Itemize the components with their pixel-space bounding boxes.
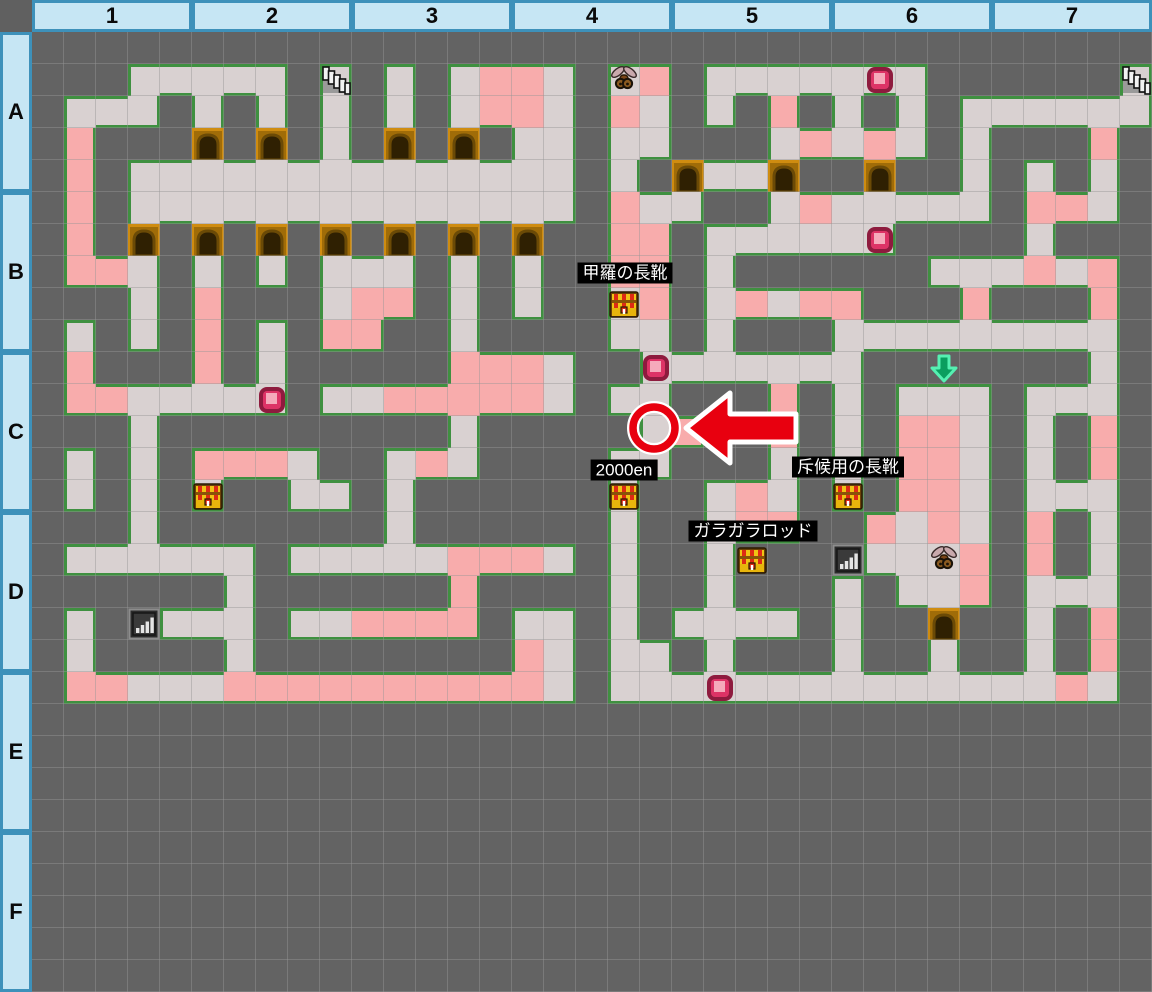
floor-tile[interactable] [608, 160, 640, 192]
floor-tile[interactable] [704, 224, 736, 256]
floor-tile[interactable] [128, 480, 160, 512]
floor-tile[interactable] [256, 352, 288, 384]
floor-tile[interactable] [928, 256, 960, 288]
floor-tile[interactable] [736, 672, 768, 704]
floor-tile[interactable] [320, 128, 352, 160]
floor-tile[interactable] [768, 288, 800, 320]
floor-tile[interactable] [832, 672, 864, 704]
floor-tile[interactable] [992, 96, 1024, 128]
damage-floor-tile[interactable] [192, 288, 224, 320]
floor-tile[interactable] [448, 96, 480, 128]
damage-floor-tile[interactable] [480, 96, 512, 128]
stairs-icon[interactable] [1120, 64, 1152, 96]
floor-tile[interactable] [1024, 384, 1056, 416]
floor-tile[interactable] [384, 512, 416, 544]
floor-tile[interactable] [224, 160, 256, 192]
floor-tile[interactable] [192, 672, 224, 704]
damage-floor-tile[interactable] [384, 672, 416, 704]
damage-floor-tile[interactable] [64, 352, 96, 384]
floor-tile[interactable] [832, 576, 864, 608]
foe-gem-icon[interactable] [704, 672, 736, 704]
floor-tile[interactable] [128, 384, 160, 416]
damage-floor-tile[interactable] [832, 288, 864, 320]
damage-floor-tile[interactable] [512, 64, 544, 96]
floor-tile[interactable] [256, 192, 288, 224]
damage-floor-tile[interactable] [192, 448, 224, 480]
floor-tile[interactable] [160, 192, 192, 224]
floor-tile[interactable] [544, 640, 576, 672]
floor-tile[interactable] [1088, 672, 1120, 704]
floor-tile[interactable] [640, 96, 672, 128]
map-canvas[interactable]: 甲羅の長靴2000en斥候用の長靴ガラガラロッド [0, 0, 1152, 992]
damage-floor-tile[interactable] [256, 448, 288, 480]
floor-tile[interactable] [320, 480, 352, 512]
floor-tile[interactable] [544, 544, 576, 576]
floor-tile[interactable] [992, 320, 1024, 352]
floor-tile[interactable] [192, 192, 224, 224]
floor-tile[interactable] [224, 544, 256, 576]
floor-tile[interactable] [224, 576, 256, 608]
floor-tile[interactable] [256, 320, 288, 352]
damage-floor-tile[interactable] [192, 352, 224, 384]
floor-tile[interactable] [896, 64, 928, 96]
floor-tile[interactable] [768, 352, 800, 384]
floor-tile[interactable] [768, 64, 800, 96]
damage-floor-tile[interactable] [928, 512, 960, 544]
door-tile[interactable] [384, 128, 416, 160]
floor-tile[interactable] [704, 320, 736, 352]
floor-tile[interactable] [224, 64, 256, 96]
damage-floor-tile[interactable] [64, 224, 96, 256]
floor-tile[interactable] [832, 64, 864, 96]
floor-tile[interactable] [896, 320, 928, 352]
floor-tile[interactable] [736, 224, 768, 256]
door-tile[interactable] [256, 224, 288, 256]
floor-tile[interactable] [1056, 256, 1088, 288]
damage-floor-tile[interactable] [512, 96, 544, 128]
door-tile[interactable] [256, 128, 288, 160]
floor-tile[interactable] [224, 640, 256, 672]
damage-floor-tile[interactable] [224, 448, 256, 480]
floor-tile[interactable] [544, 672, 576, 704]
floor-tile[interactable] [608, 544, 640, 576]
floor-tile[interactable] [128, 544, 160, 576]
damage-floor-tile[interactable] [416, 608, 448, 640]
foe-gem-icon[interactable] [256, 384, 288, 416]
door-tile[interactable] [128, 224, 160, 256]
floor-tile[interactable] [1024, 224, 1056, 256]
floor-tile[interactable] [960, 96, 992, 128]
descend-arrow-icon[interactable] [928, 352, 960, 384]
floor-tile[interactable] [256, 160, 288, 192]
floor-tile[interactable] [768, 480, 800, 512]
floor-tile[interactable] [128, 320, 160, 352]
floor-tile[interactable] [832, 416, 864, 448]
damage-floor-tile[interactable] [352, 672, 384, 704]
floor-tile[interactable] [192, 608, 224, 640]
floor-tile[interactable] [544, 384, 576, 416]
floor-tile[interactable] [672, 672, 704, 704]
floor-tile[interactable] [384, 256, 416, 288]
damage-floor-tile[interactable] [448, 672, 480, 704]
damage-floor-tile[interactable] [928, 480, 960, 512]
damage-floor-tile[interactable] [640, 224, 672, 256]
damage-floor-tile[interactable] [800, 288, 832, 320]
door-tile[interactable] [672, 160, 704, 192]
floor-tile[interactable] [1024, 320, 1056, 352]
floor-tile[interactable] [704, 96, 736, 128]
floor-tile[interactable] [352, 544, 384, 576]
floor-tile[interactable] [160, 384, 192, 416]
floor-tile[interactable] [320, 608, 352, 640]
floor-tile[interactable] [64, 480, 96, 512]
floor-tile[interactable] [480, 192, 512, 224]
floor-tile[interactable] [288, 192, 320, 224]
damage-floor-tile[interactable] [1024, 192, 1056, 224]
floor-tile[interactable] [896, 544, 928, 576]
floor-tile[interactable] [960, 320, 992, 352]
floor-tile[interactable] [832, 96, 864, 128]
floor-tile[interactable] [832, 640, 864, 672]
damage-floor-tile[interactable] [448, 608, 480, 640]
damage-floor-tile[interactable] [928, 416, 960, 448]
floor-tile[interactable] [640, 192, 672, 224]
floor-tile[interactable] [288, 448, 320, 480]
floor-tile[interactable] [960, 256, 992, 288]
floor-tile[interactable] [448, 288, 480, 320]
floor-tile[interactable] [384, 64, 416, 96]
floor-tile[interactable] [704, 576, 736, 608]
floor-tile[interactable] [832, 224, 864, 256]
damage-floor-tile[interactable] [640, 288, 672, 320]
damage-floor-tile[interactable] [1024, 512, 1056, 544]
damage-floor-tile[interactable] [320, 672, 352, 704]
damage-floor-tile[interactable] [768, 96, 800, 128]
damage-floor-tile[interactable] [1088, 288, 1120, 320]
floor-tile[interactable] [832, 128, 864, 160]
floor-tile[interactable] [352, 160, 384, 192]
damage-floor-tile[interactable] [480, 384, 512, 416]
foe-monster-icon[interactable] [608, 64, 640, 96]
damage-floor-tile[interactable] [864, 128, 896, 160]
floor-tile[interactable] [320, 96, 352, 128]
floor-tile[interactable] [128, 256, 160, 288]
floor-tile[interactable] [1056, 384, 1088, 416]
floor-tile[interactable] [288, 160, 320, 192]
floor-tile[interactable] [960, 480, 992, 512]
damage-floor-tile[interactable] [640, 64, 672, 96]
floor-tile[interactable] [608, 320, 640, 352]
floor-tile[interactable] [896, 192, 928, 224]
treasure-chest-icon[interactable] [608, 288, 640, 320]
floor-tile[interactable] [320, 288, 352, 320]
floor-tile[interactable] [128, 96, 160, 128]
floor-tile[interactable] [832, 608, 864, 640]
damage-floor-tile[interactable] [800, 192, 832, 224]
chart-panel-icon[interactable] [832, 544, 864, 576]
floor-tile[interactable] [1056, 320, 1088, 352]
floor-tile[interactable] [896, 384, 928, 416]
floor-tile[interactable] [1024, 160, 1056, 192]
floor-tile[interactable] [608, 640, 640, 672]
floor-tile[interactable] [1120, 96, 1152, 128]
floor-tile[interactable] [1024, 576, 1056, 608]
floor-tile[interactable] [224, 384, 256, 416]
floor-tile[interactable] [896, 576, 928, 608]
floor-tile[interactable] [704, 352, 736, 384]
floor-tile[interactable] [1024, 672, 1056, 704]
floor-tile[interactable] [1056, 480, 1088, 512]
damage-floor-tile[interactable] [960, 544, 992, 576]
floor-tile[interactable] [960, 672, 992, 704]
damage-floor-tile[interactable] [384, 288, 416, 320]
floor-tile[interactable] [960, 416, 992, 448]
floor-tile[interactable] [544, 192, 576, 224]
floor-tile[interactable] [864, 320, 896, 352]
floor-tile[interactable] [448, 64, 480, 96]
floor-tile[interactable] [768, 192, 800, 224]
floor-tile[interactable] [832, 352, 864, 384]
floor-tile[interactable] [800, 64, 832, 96]
floor-tile[interactable] [1088, 320, 1120, 352]
damage-floor-tile[interactable] [224, 672, 256, 704]
floor-tile[interactable] [1088, 160, 1120, 192]
floor-tile[interactable] [384, 160, 416, 192]
floor-tile[interactable] [96, 544, 128, 576]
floor-tile[interactable] [640, 640, 672, 672]
damage-floor-tile[interactable] [1088, 608, 1120, 640]
floor-tile[interactable] [448, 448, 480, 480]
floor-tile[interactable] [960, 448, 992, 480]
floor-tile[interactable] [192, 96, 224, 128]
damage-floor-tile[interactable] [512, 544, 544, 576]
floor-tile[interactable] [64, 448, 96, 480]
damage-floor-tile[interactable] [288, 672, 320, 704]
floor-tile[interactable] [544, 64, 576, 96]
floor-tile[interactable] [704, 608, 736, 640]
floor-tile[interactable] [1088, 512, 1120, 544]
floor-tile[interactable] [704, 160, 736, 192]
floor-tile[interactable] [192, 160, 224, 192]
damage-floor-tile[interactable] [448, 544, 480, 576]
damage-floor-tile[interactable] [64, 192, 96, 224]
floor-tile[interactable] [352, 192, 384, 224]
damage-floor-tile[interactable] [512, 640, 544, 672]
treasure-chest-icon[interactable] [608, 480, 640, 512]
damage-floor-tile[interactable] [608, 96, 640, 128]
floor-tile[interactable] [352, 384, 384, 416]
foe-gem-icon[interactable] [640, 352, 672, 384]
floor-tile[interactable] [704, 544, 736, 576]
floor-tile[interactable] [928, 192, 960, 224]
floor-tile[interactable] [64, 320, 96, 352]
damage-floor-tile[interactable] [1088, 416, 1120, 448]
damage-floor-tile[interactable] [864, 512, 896, 544]
damage-floor-tile[interactable] [64, 672, 96, 704]
door-tile[interactable] [448, 224, 480, 256]
floor-tile[interactable] [1024, 640, 1056, 672]
floor-tile[interactable] [160, 160, 192, 192]
floor-tile[interactable] [800, 352, 832, 384]
damage-floor-tile[interactable] [960, 288, 992, 320]
floor-tile[interactable] [160, 608, 192, 640]
door-tile[interactable] [192, 224, 224, 256]
damage-floor-tile[interactable] [352, 608, 384, 640]
floor-tile[interactable] [128, 64, 160, 96]
floor-tile[interactable] [800, 672, 832, 704]
floor-tile[interactable] [608, 128, 640, 160]
floor-tile[interactable] [608, 576, 640, 608]
floor-tile[interactable] [1088, 352, 1120, 384]
floor-tile[interactable] [1024, 448, 1056, 480]
floor-tile[interactable] [96, 96, 128, 128]
floor-tile[interactable] [704, 480, 736, 512]
damage-floor-tile[interactable] [736, 480, 768, 512]
damage-floor-tile[interactable] [352, 320, 384, 352]
floor-tile[interactable] [960, 192, 992, 224]
damage-floor-tile[interactable] [928, 448, 960, 480]
door-tile[interactable] [512, 224, 544, 256]
floor-tile[interactable] [864, 544, 896, 576]
floor-tile[interactable] [1088, 384, 1120, 416]
damage-floor-tile[interactable] [608, 192, 640, 224]
floor-tile[interactable] [896, 672, 928, 704]
foe-monster-icon[interactable] [928, 544, 960, 576]
floor-tile[interactable] [256, 96, 288, 128]
floor-tile[interactable] [320, 384, 352, 416]
floor-tile[interactable] [192, 544, 224, 576]
damage-floor-tile[interactable] [480, 64, 512, 96]
floor-tile[interactable] [64, 608, 96, 640]
floor-tile[interactable] [768, 128, 800, 160]
damage-floor-tile[interactable] [96, 256, 128, 288]
floor-tile[interactable] [352, 256, 384, 288]
damage-floor-tile[interactable] [896, 416, 928, 448]
damage-floor-tile[interactable] [896, 480, 928, 512]
floor-tile[interactable] [736, 608, 768, 640]
floor-tile[interactable] [896, 512, 928, 544]
floor-tile[interactable] [1056, 96, 1088, 128]
floor-tile[interactable] [928, 640, 960, 672]
floor-tile[interactable] [1088, 192, 1120, 224]
chart-panel-icon[interactable] [128, 608, 160, 640]
floor-tile[interactable] [736, 64, 768, 96]
door-tile[interactable] [928, 608, 960, 640]
door-tile[interactable] [768, 160, 800, 192]
floor-tile[interactable] [1024, 96, 1056, 128]
damage-floor-tile[interactable] [192, 320, 224, 352]
floor-tile[interactable] [128, 416, 160, 448]
damage-floor-tile[interactable] [736, 288, 768, 320]
floor-tile[interactable] [256, 256, 288, 288]
floor-tile[interactable] [320, 192, 352, 224]
damage-floor-tile[interactable] [1056, 672, 1088, 704]
treasure-chest-icon[interactable] [832, 480, 864, 512]
floor-tile[interactable] [832, 320, 864, 352]
damage-floor-tile[interactable] [480, 544, 512, 576]
door-tile[interactable] [192, 128, 224, 160]
floor-tile[interactable] [960, 160, 992, 192]
damage-floor-tile[interactable] [448, 576, 480, 608]
floor-tile[interactable] [416, 192, 448, 224]
floor-tile[interactable] [992, 256, 1024, 288]
floor-tile[interactable] [448, 256, 480, 288]
floor-tile[interactable] [384, 192, 416, 224]
foe-gem-icon[interactable] [864, 64, 896, 96]
floor-tile[interactable] [448, 320, 480, 352]
floor-tile[interactable] [160, 672, 192, 704]
floor-tile[interactable] [192, 384, 224, 416]
damage-floor-tile[interactable] [512, 384, 544, 416]
floor-tile[interactable] [160, 544, 192, 576]
floor-tile[interactable] [544, 608, 576, 640]
floor-tile[interactable] [928, 672, 960, 704]
damage-floor-tile[interactable] [320, 320, 352, 352]
door-tile[interactable] [864, 160, 896, 192]
floor-tile[interactable] [512, 256, 544, 288]
floor-tile[interactable] [128, 160, 160, 192]
damage-floor-tile[interactable] [1088, 256, 1120, 288]
floor-tile[interactable] [192, 64, 224, 96]
floor-tile[interactable] [128, 672, 160, 704]
floor-tile[interactable] [736, 352, 768, 384]
damage-floor-tile[interactable] [1024, 256, 1056, 288]
floor-tile[interactable] [320, 544, 352, 576]
floor-tile[interactable] [288, 544, 320, 576]
floor-tile[interactable] [672, 192, 704, 224]
floor-tile[interactable] [1088, 576, 1120, 608]
floor-tile[interactable] [224, 608, 256, 640]
floor-tile[interactable] [704, 64, 736, 96]
floor-tile[interactable] [288, 480, 320, 512]
floor-tile[interactable] [320, 256, 352, 288]
floor-tile[interactable] [864, 192, 896, 224]
damage-floor-tile[interactable] [512, 672, 544, 704]
damage-floor-tile[interactable] [1088, 128, 1120, 160]
floor-tile[interactable] [672, 608, 704, 640]
floor-tile[interactable] [960, 512, 992, 544]
damage-floor-tile[interactable] [384, 384, 416, 416]
floor-tile[interactable] [256, 64, 288, 96]
floor-tile[interactable] [160, 64, 192, 96]
floor-tile[interactable] [64, 96, 96, 128]
floor-tile[interactable] [640, 672, 672, 704]
floor-tile[interactable] [896, 96, 928, 128]
damage-floor-tile[interactable] [96, 672, 128, 704]
door-tile[interactable] [384, 224, 416, 256]
floor-tile[interactable] [704, 256, 736, 288]
floor-tile[interactable] [544, 160, 576, 192]
damage-floor-tile[interactable] [1088, 640, 1120, 672]
floor-tile[interactable] [544, 352, 576, 384]
foe-gem-icon[interactable] [864, 224, 896, 256]
floor-tile[interactable] [800, 224, 832, 256]
floor-tile[interactable] [640, 128, 672, 160]
floor-tile[interactable] [384, 96, 416, 128]
damage-floor-tile[interactable] [416, 384, 448, 416]
floor-tile[interactable] [480, 160, 512, 192]
floor-tile[interactable] [64, 640, 96, 672]
floor-tile[interactable] [128, 288, 160, 320]
floor-tile[interactable] [768, 224, 800, 256]
floor-tile[interactable] [1056, 576, 1088, 608]
floor-tile[interactable] [384, 544, 416, 576]
door-tile[interactable] [320, 224, 352, 256]
floor-tile[interactable] [1088, 480, 1120, 512]
floor-tile[interactable] [672, 352, 704, 384]
floor-tile[interactable] [448, 416, 480, 448]
damage-floor-tile[interactable] [608, 224, 640, 256]
